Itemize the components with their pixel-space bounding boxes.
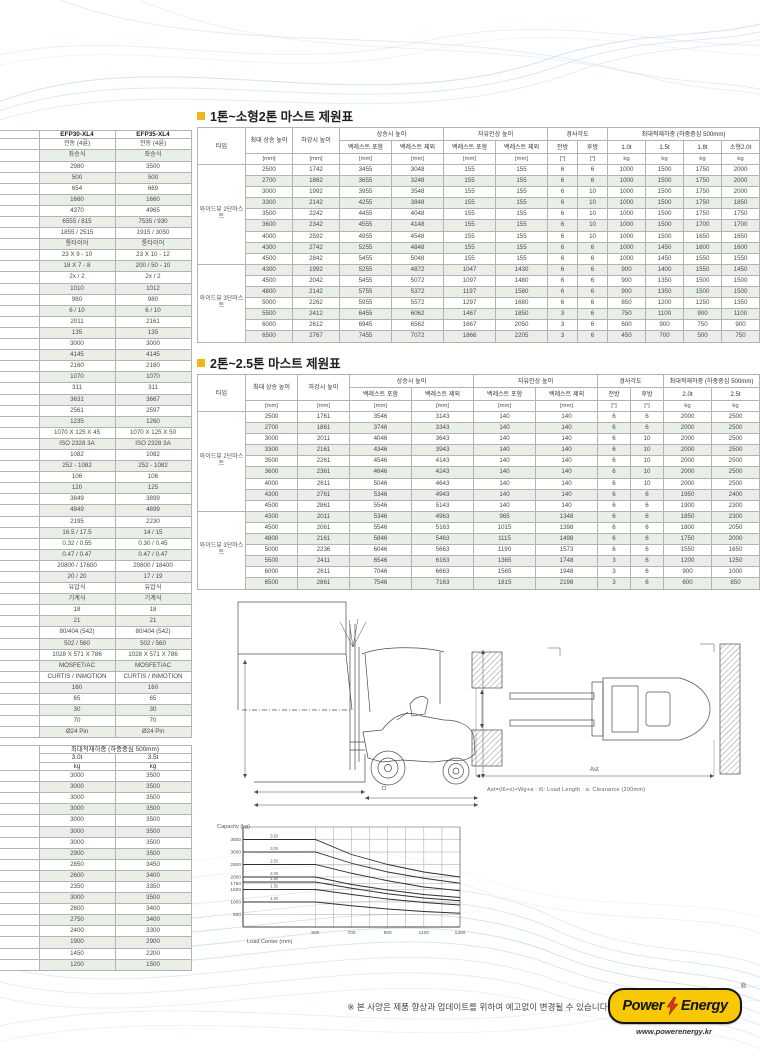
table-cell	[0, 915, 39, 926]
table-cell: 1500	[722, 275, 760, 286]
unit-mm: [mm]	[298, 401, 350, 412]
table-cell: 1866	[444, 331, 496, 342]
table-cell	[0, 627, 39, 638]
table-cell: 2000	[722, 187, 760, 198]
table-cell	[0, 771, 39, 782]
table-cell: 1010	[39, 283, 115, 294]
table-cell: 900	[664, 567, 712, 578]
table-cell: ISO 2328 3A	[115, 438, 191, 449]
table-cell: 4500	[246, 500, 298, 511]
unit-kg: kg	[712, 401, 760, 412]
table-cell: 3	[548, 309, 578, 320]
table-cell	[0, 350, 39, 361]
table-cell: 1750	[684, 187, 722, 198]
table-cell: 3548	[392, 187, 444, 198]
col-tilt: 경사각도	[548, 128, 608, 141]
table-cell: 6	[548, 298, 578, 309]
table-cell: 30	[115, 705, 191, 716]
table-cell: 1000	[608, 187, 646, 198]
col-extended: 상승시 높이	[340, 128, 444, 141]
table-cell: 155	[496, 231, 548, 242]
table-cell: 500	[115, 172, 191, 183]
table-cell: 1430	[496, 264, 548, 275]
table-cell	[0, 283, 39, 294]
table-cell: 5455	[340, 275, 392, 286]
table-cell: 1500	[684, 275, 722, 286]
table-cell: 3400	[115, 915, 191, 926]
table-cell: 2050	[712, 522, 760, 533]
unit-kg: kg	[684, 154, 722, 165]
mast-type-label: 와이드뷰 2단마스트	[198, 165, 246, 265]
table-cell: 1498	[536, 534, 598, 545]
table-cell	[0, 339, 39, 350]
table-cell: 654	[39, 183, 115, 194]
table-cell: 1948	[536, 567, 598, 578]
table-cell: 4955	[340, 231, 392, 242]
section-title-text: 1톤~소형2톤 마스트 제원표	[210, 106, 353, 125]
table-cell: 3955	[340, 187, 392, 198]
unit-kg: kg	[722, 154, 760, 165]
table-cell: 669	[115, 183, 191, 194]
table-cell: 14 / 15	[115, 527, 191, 538]
table-cell: 2800	[39, 904, 115, 915]
mast-table-2ton: 타입 최대 상승 높이 하강시 높이 상승시 높이 자유인상 높이 경사각도 최…	[197, 374, 760, 590]
table-cell: 2000	[664, 456, 712, 467]
table-cell: 1028 X 571 X 786	[39, 649, 115, 660]
table-cell: 4555	[340, 220, 392, 231]
table-cell: 통타이어	[115, 239, 191, 250]
table-cell: 6	[578, 320, 608, 331]
table-cell: 155	[444, 187, 496, 198]
table-cell	[0, 826, 39, 837]
col-backrest-incl: 백레스트 포함	[340, 141, 392, 154]
table-cell: 18	[39, 605, 115, 616]
table-cell	[0, 194, 39, 205]
table-cell: 20800 / 17600	[39, 560, 115, 571]
table-cell: 5546	[350, 522, 412, 533]
table-cell: 1348	[536, 511, 598, 522]
table-cell: Ø24 Pin	[39, 727, 115, 738]
y-tick-label: 1750	[230, 881, 241, 887]
table-cell	[0, 904, 39, 915]
table-cell: 2900	[115, 937, 191, 948]
table-cell: 4646	[350, 467, 412, 478]
series-label: 3.0t	[270, 846, 278, 851]
section-title-text: 2톤~2.5톤 마스트 제원표	[210, 353, 341, 372]
table-cell: 3500	[115, 815, 191, 826]
table-cell: 6	[578, 253, 608, 264]
table-cell: 2042	[293, 275, 340, 286]
table-cell: 6163	[412, 556, 474, 567]
table-cell: 5755	[340, 287, 392, 298]
table-cell	[0, 427, 39, 438]
table-cell: 통타이어	[39, 239, 115, 250]
table-cell: 2205	[496, 331, 548, 342]
table-cell: 4849	[39, 505, 115, 516]
table-cell: 3899	[115, 494, 191, 505]
table-cell: 6	[598, 545, 631, 556]
table-cell: 3300	[246, 198, 293, 209]
table-cell: 1070	[39, 372, 115, 383]
table-cell: 2262	[293, 298, 340, 309]
table-cell: 2500	[246, 412, 298, 423]
table-cell	[0, 948, 39, 959]
table-cell: 5046	[350, 478, 412, 489]
series-label: 2.5t	[270, 859, 278, 864]
table-cell: 10	[631, 456, 664, 467]
table-cell: 10	[578, 209, 608, 220]
table-cell: 6945	[340, 320, 392, 331]
table-cell: 155	[444, 220, 496, 231]
table-cell: 6	[631, 556, 664, 567]
table-cell: 3000	[39, 339, 115, 350]
table-cell: 1398	[536, 522, 598, 533]
table-cell	[0, 937, 39, 948]
table-cell	[0, 560, 39, 571]
table-cell	[0, 694, 39, 705]
col-type: 타입	[198, 375, 246, 412]
col-lowered: 하강시 높이	[298, 375, 350, 401]
table-cell: 1015	[474, 522, 536, 533]
table-cell: 유압식	[115, 583, 191, 594]
table-cell: 6	[631, 423, 664, 434]
table-cell: 140	[536, 445, 598, 456]
table-cell: 6062	[392, 309, 444, 320]
unit-mm: [mm]	[474, 401, 536, 412]
x-tick-label: 1100	[419, 930, 430, 936]
col-backrest-excl: 백레스트 제외	[412, 388, 474, 401]
table-cell: 5546	[350, 500, 412, 511]
table-cell	[0, 870, 39, 881]
table-cell: 2011	[298, 511, 350, 522]
table-cell: 4963	[412, 511, 474, 522]
table-cell: 6	[548, 176, 578, 187]
col-tilt-bwd: 후방	[578, 141, 608, 154]
table-cell: 5463	[412, 534, 474, 545]
table-cell: 900	[608, 287, 646, 298]
table-cell: 3000	[39, 893, 115, 904]
table-cell: 2000	[722, 176, 760, 187]
mast-table-1ton: 타입 최대 상승 높이 하강시 높이 상승시 높이 자유인상 높이 경사각도 최…	[197, 127, 760, 343]
table-cell: 2x / 2	[39, 272, 115, 283]
table-cell	[0, 150, 39, 161]
table-cell: 140	[536, 478, 598, 489]
table-cell: 1000	[608, 176, 646, 187]
table-cell: 1200	[664, 556, 712, 567]
table-cell: 6500	[246, 578, 298, 589]
table-cell: 20 / 20	[39, 572, 115, 583]
table-cell: 6	[548, 165, 578, 176]
table-cell	[0, 217, 39, 228]
table-cell: 6	[578, 309, 608, 320]
table-cell: 18	[115, 605, 191, 616]
x-tick-label: 900	[384, 930, 392, 936]
table-cell: 3143	[412, 412, 474, 423]
table-cell	[0, 383, 39, 394]
table-cell: 70	[115, 716, 191, 727]
table-cell: 4455	[340, 209, 392, 220]
table-cell: 3500	[115, 782, 191, 793]
table-cell: 6663	[412, 567, 474, 578]
table-cell: 2198	[536, 578, 598, 589]
table-cell: 1600	[684, 242, 722, 253]
table-cell: 3500	[115, 793, 191, 804]
table-cell	[0, 261, 39, 272]
table-cell: 3943	[412, 445, 474, 456]
y-tick-label: 1000	[230, 900, 241, 906]
table-cell: 1190	[474, 545, 536, 556]
table-cell: 3848	[392, 198, 444, 209]
table-cell: 140	[536, 467, 598, 478]
table-cell	[0, 516, 39, 527]
table-cell: 2x / 2	[115, 272, 191, 283]
table-cell: 2011	[39, 316, 115, 327]
col-cap-2.0t: 2.0t	[664, 388, 712, 401]
table-cell: 6	[548, 220, 578, 231]
table-cell: 6	[578, 275, 608, 286]
table-cell	[0, 782, 39, 793]
table-cell: 7535 / 930	[115, 217, 191, 228]
table-cell: 7455	[340, 331, 392, 342]
table-cell: 5072	[392, 275, 444, 286]
table-cell: 1850	[496, 309, 548, 320]
table-cell	[0, 294, 39, 305]
table-cell: 1297	[444, 298, 496, 309]
table-cell: 1197	[444, 287, 496, 298]
table-cell: 900	[608, 264, 646, 275]
table-cell	[0, 161, 39, 172]
table-cell: 3	[598, 556, 631, 567]
table-cell: 140	[536, 500, 598, 511]
table-cell: 1992	[293, 264, 340, 275]
table-cell: 1573	[536, 545, 598, 556]
table-cell: 6	[598, 467, 631, 478]
unit-mm: [mm]	[293, 154, 340, 165]
table-cell: 2500	[712, 412, 760, 423]
table-cell: 1500	[646, 220, 684, 231]
table-cell: 5955	[340, 298, 392, 309]
table-cell: 140	[474, 467, 536, 478]
table-cell: 21	[39, 616, 115, 627]
table-cell: 4872	[392, 264, 444, 275]
table-cell: 140	[536, 456, 598, 467]
table-cell: 4500	[246, 253, 293, 264]
table-cell: 450	[608, 331, 646, 342]
table-cell	[0, 882, 39, 893]
table-cell: 1855 / 2515	[39, 228, 115, 239]
table-cell: 좌승식	[115, 150, 191, 161]
unit-deg: [°]	[548, 154, 578, 165]
y-tick-label: 500	[233, 912, 241, 918]
table-cell: 6	[631, 522, 664, 533]
table-cell: 2611	[298, 478, 350, 489]
brochure-page: EFP30-XL4 EFP35-XL4 전동 (4륜)전동 (4륜)좌승식좌승식…	[0, 0, 760, 1063]
table-cell: 6000	[246, 320, 293, 331]
table-cell: 252 - 1082	[115, 461, 191, 472]
table-cell: 2161	[298, 534, 350, 545]
col-cap-1.5t: 1.5t	[646, 141, 684, 154]
table-cell: 6	[598, 434, 631, 445]
table-cell: 1500	[115, 959, 191, 970]
table-cell: 1748	[536, 556, 598, 567]
table-cell: 1000	[712, 567, 760, 578]
table-cell: 140	[474, 489, 536, 500]
y-tick-label: 3500	[230, 837, 241, 843]
table-cell	[0, 305, 39, 316]
table-cell: 6500	[246, 331, 293, 342]
table-cell: 1450	[39, 948, 115, 959]
table-cell: 4370	[39, 205, 115, 216]
table-cell	[0, 837, 39, 848]
table-cell	[0, 682, 39, 693]
table-cell: 2000	[664, 412, 712, 423]
table-cell: 4500	[246, 275, 293, 286]
capacity-unit: kg	[39, 762, 115, 770]
table-cell: 140	[536, 434, 598, 445]
table-cell: 5163	[412, 522, 474, 533]
table-cell: 140	[474, 500, 536, 511]
table-cell: 3849	[39, 494, 115, 505]
table-cell: 1500	[722, 287, 760, 298]
table-cell: 4300	[246, 264, 293, 275]
table-cell: 155	[496, 187, 548, 198]
table-cell: 2980	[39, 161, 115, 172]
capacity-table-header: 최대적재하중 (하중중심 500mm)	[39, 746, 191, 754]
x-tick-label: 700	[347, 930, 355, 936]
table-cell: 2300	[712, 511, 760, 522]
table-cell: 6000	[246, 567, 298, 578]
table-cell: 2342	[293, 220, 340, 231]
table-cell: 1000	[608, 242, 646, 253]
table-cell: 1028 X 571 X 786	[115, 649, 191, 660]
table-cell: 850	[712, 578, 760, 589]
table-cell	[0, 272, 39, 283]
col-backrest-excl: 백레스트 제외	[496, 141, 548, 154]
table-cell: 2500	[712, 434, 760, 445]
table-cell: 2161	[115, 316, 191, 327]
table-cell: 5255	[340, 264, 392, 275]
table-cell: 106	[39, 472, 115, 483]
table-cell	[0, 250, 39, 261]
y-tick-label: 2500	[230, 862, 241, 868]
table-cell: 3000	[246, 434, 298, 445]
table-cell	[0, 549, 39, 560]
table-cell: 3450	[115, 859, 191, 870]
table-cell: 6	[578, 165, 608, 176]
table-cell: 20800 / 18400	[115, 560, 191, 571]
table-cell: 1000	[608, 165, 646, 176]
table-cell: 전동 (4륜)	[39, 139, 115, 150]
table-cell: 4145	[115, 350, 191, 361]
table-cell: 1450	[646, 253, 684, 264]
table-cell: 140	[536, 412, 598, 423]
table-cell: 140	[474, 478, 536, 489]
table-cell: 2200	[115, 948, 191, 959]
col-tilt-bwd: 후방	[631, 388, 664, 401]
table-cell: 2061	[298, 522, 350, 533]
table-cell: 5455	[340, 253, 392, 264]
table-cell: 155	[496, 176, 548, 187]
table-cell: 6	[578, 264, 608, 275]
table-cell	[0, 716, 39, 727]
table-cell: 155	[444, 231, 496, 242]
table-cell: 1000	[608, 220, 646, 231]
table-cell: 2400	[39, 926, 115, 937]
spec-table-sliver	[0, 131, 39, 139]
series-label: 1.8t	[270, 876, 278, 881]
table-cell: 1200	[646, 298, 684, 309]
table-cell: ISO 2328 3A	[39, 438, 115, 449]
table-cell: 3400	[115, 904, 191, 915]
table-cell: 155	[496, 220, 548, 231]
table-cell: 3655	[340, 176, 392, 187]
logo-oval: Power Energy ®	[608, 988, 742, 1024]
table-cell	[0, 727, 39, 738]
table-cell: 5346	[350, 489, 412, 500]
table-cell: 3048	[392, 165, 444, 176]
table-cell: 140	[536, 489, 598, 500]
table-cell: 6046	[350, 545, 412, 556]
table-cell: 3546	[350, 412, 412, 423]
table-cell: 2050	[496, 320, 548, 331]
table-cell: 120	[39, 483, 115, 494]
table-cell	[0, 483, 39, 494]
table-cell: 3500	[115, 826, 191, 837]
section-bullet-icon	[197, 112, 205, 120]
table-cell: 1750	[684, 176, 722, 187]
table-cell	[0, 893, 39, 904]
table-cell: 80/404 (542)	[39, 627, 115, 638]
table-cell: 6555 / 815	[39, 217, 115, 228]
table-cell: 2850	[39, 859, 115, 870]
table-cell: 6	[598, 478, 631, 489]
table-cell: 2300	[712, 500, 760, 511]
table-cell: 1000	[608, 253, 646, 264]
table-cell: 2411	[298, 556, 350, 567]
table-cell: 7163	[412, 578, 474, 589]
table-cell: 6	[631, 489, 664, 500]
table-cell: 1000	[608, 209, 646, 220]
table-cell: 4800	[246, 287, 293, 298]
table-cell: 2011	[298, 434, 350, 445]
table-cell: 600	[608, 320, 646, 331]
table-cell: 7046	[350, 567, 412, 578]
table-cell	[0, 638, 39, 649]
table-cell	[0, 228, 39, 239]
table-cell: 4148	[392, 220, 444, 231]
table-cell: 4300	[246, 511, 298, 522]
table-cell: 5663	[412, 545, 474, 556]
table-cell: 1761	[298, 412, 350, 423]
series-label: 3.5t	[270, 834, 278, 839]
table-cell: 1235	[39, 416, 115, 427]
table-cell: 2500	[712, 445, 760, 456]
table-cell: 1550	[684, 253, 722, 264]
mast-type-label: 와이드뷰 2단마스트	[198, 412, 246, 512]
table-cell: 5372	[392, 287, 444, 298]
table-cell: 3	[598, 567, 631, 578]
table-cell: 7072	[392, 331, 444, 342]
table-cell: 3000	[39, 815, 115, 826]
table-cell: 6	[548, 275, 578, 286]
table-cell: 3300	[246, 445, 298, 456]
table-cell: 1450	[722, 264, 760, 275]
table-cell: 6	[548, 187, 578, 198]
table-cell: 980	[115, 294, 191, 305]
table-cell: 140	[474, 412, 536, 423]
table-cell: 1400	[646, 264, 684, 275]
table-cell: 3343	[412, 423, 474, 434]
